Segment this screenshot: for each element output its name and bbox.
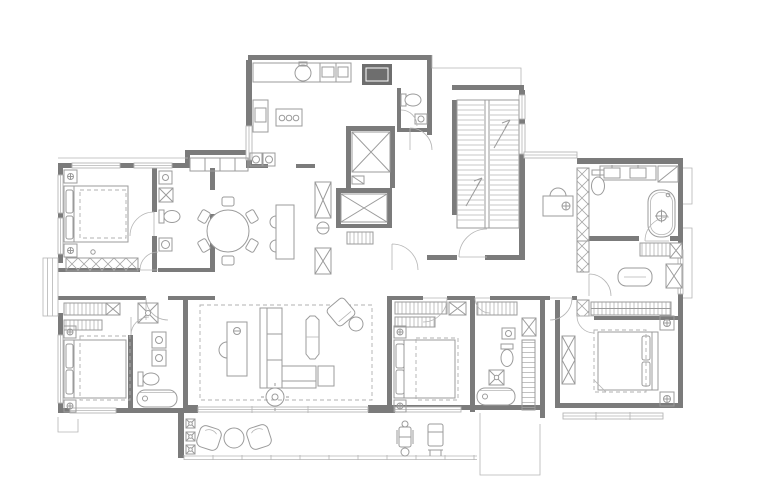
hanging-rack-icon <box>591 302 671 315</box>
lounge-chair <box>195 424 223 452</box>
bathroom-4 <box>131 303 177 407</box>
elevator-shaft-icon <box>341 194 387 222</box>
round-side-table <box>349 317 363 331</box>
bathtub-icon <box>648 190 675 237</box>
stool-icon <box>270 240 276 252</box>
bedroom4-door-arc <box>146 298 168 320</box>
elevator-shaft-icon <box>352 132 390 172</box>
staircase <box>457 100 519 228</box>
floor-plan-drawing <box>0 0 761 483</box>
bedroom-2 <box>394 298 466 412</box>
toilet-icon <box>401 94 421 106</box>
closet-door-arc <box>589 274 611 296</box>
island-bench <box>618 268 652 286</box>
floor-plan-page <box>0 0 761 483</box>
shower-icon <box>489 370 504 385</box>
bay-window <box>43 258 58 316</box>
dining-area <box>190 158 294 265</box>
storage-box-icon <box>449 302 466 315</box>
desk <box>227 322 247 376</box>
bench <box>562 336 575 384</box>
wardrobe-icon <box>66 258 138 271</box>
storage-box-icon <box>666 264 682 288</box>
lounge-chair <box>245 423 273 451</box>
nightstand <box>64 244 77 257</box>
drain-marker-icon <box>186 432 195 441</box>
master-door-arc <box>550 298 572 320</box>
nightstand <box>64 170 77 183</box>
terrace <box>184 419 477 460</box>
coffee-table <box>306 316 319 359</box>
kitchen-sink-icon <box>295 65 311 81</box>
powder-room <box>401 94 427 126</box>
stool-icon <box>270 216 276 228</box>
deck-chair-icon <box>428 424 443 456</box>
shelf-column <box>522 340 535 410</box>
closet-rack-icon <box>64 320 102 330</box>
bed <box>64 186 128 242</box>
desk-chair-icon <box>219 342 227 358</box>
toilet-icon <box>138 372 159 386</box>
shaft-column-icon <box>315 182 331 218</box>
dining-chair <box>222 197 234 206</box>
stair-arrow-icon <box>494 120 510 148</box>
drain-marker-icon <box>186 445 195 454</box>
bed <box>64 336 130 400</box>
closet-rack-icon <box>395 302 447 314</box>
shower-icon <box>159 188 173 202</box>
bathtub-icon <box>137 390 177 407</box>
storage-box-icon <box>522 318 536 336</box>
entry-door-arc <box>392 244 418 270</box>
light-icon <box>91 250 95 254</box>
corner-shelf <box>658 166 678 182</box>
nightstand <box>394 326 406 338</box>
storage-box-icon <box>670 243 682 258</box>
toilet-icon <box>592 170 605 195</box>
sink-icon <box>502 328 515 339</box>
bathtub-icon <box>477 388 515 405</box>
stair-door-arc <box>459 229 487 257</box>
shower-icon <box>138 303 158 323</box>
terrace-table <box>224 428 244 448</box>
dining-table <box>207 210 249 252</box>
staircase-hall <box>457 100 519 257</box>
toilet-icon <box>159 210 180 223</box>
bathroom3-door-arc <box>130 212 154 236</box>
sideboard <box>190 158 248 171</box>
sink-icon <box>152 350 166 366</box>
dining-chair <box>222 256 234 265</box>
cooktop-icon <box>276 109 302 126</box>
toilet-icon <box>501 344 513 367</box>
railing <box>184 456 477 460</box>
armchair <box>326 297 357 328</box>
sink-icon <box>630 165 646 178</box>
island-counter <box>276 205 294 259</box>
study-nook <box>543 188 573 216</box>
linen-rack-icon <box>477 302 517 315</box>
sink-icon <box>152 332 166 348</box>
sink-icon <box>604 165 620 178</box>
sink-icon <box>159 171 172 184</box>
drain-marker-icon <box>186 419 195 428</box>
coat-rack-icon <box>347 232 373 244</box>
closet-bedroom-door-arc <box>577 316 594 333</box>
closet-rack-icon <box>64 303 106 315</box>
bedroom-3 <box>64 170 158 271</box>
bed <box>594 330 658 392</box>
stair-arrow-icon <box>466 178 482 206</box>
hanging-rack-icon <box>640 243 670 256</box>
side-table <box>318 366 334 386</box>
master-bathroom <box>592 165 679 241</box>
bathroom-2 <box>475 298 536 410</box>
bed <box>394 338 458 400</box>
exercise-bike-icon <box>397 421 413 456</box>
living-room <box>200 297 372 411</box>
desk-chair-icon <box>550 188 566 196</box>
storage-box-icon <box>106 303 120 315</box>
shaft-column-icon <box>315 248 331 274</box>
washer-icon <box>159 238 172 251</box>
